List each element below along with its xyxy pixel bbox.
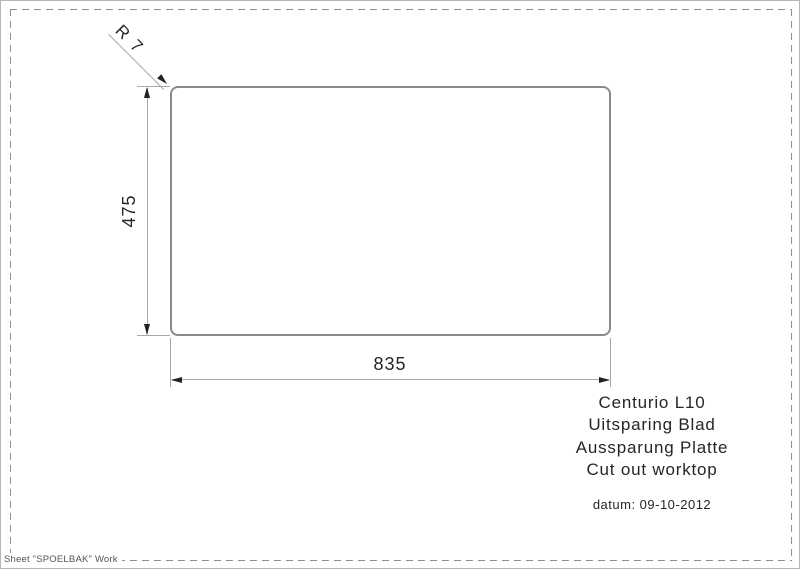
- dimension-arrow-left-icon: [171, 377, 182, 383]
- title-block: Centurio L10 Uitsparing Blad Aussparung …: [552, 392, 752, 482]
- drawing-sheet: R 7 475 835 Centurio L10 Uitsparing Blad…: [0, 0, 800, 569]
- dashed-frame-bottom: [10, 560, 792, 561]
- dashed-frame-top: [10, 9, 792, 10]
- cutout-rectangle: [170, 86, 611, 336]
- date-label: datum: 09-10-2012: [552, 497, 752, 512]
- vertical-dimension-line: [147, 88, 148, 334]
- dashed-frame-left: [10, 9, 11, 561]
- title-block-line-nl: Uitsparing Blad: [552, 414, 752, 436]
- title-block-line-en: Cut out worktop: [552, 459, 752, 481]
- title-block-product-name: Centurio L10: [552, 392, 752, 414]
- sheet-label: Sheet "SPOELBAK" Work: [2, 553, 122, 565]
- extension-line-bottom-left: [137, 335, 170, 336]
- height-dimension-label: 475: [119, 171, 139, 251]
- dimension-arrow-right-icon: [599, 377, 610, 383]
- width-dimension-label: 835: [340, 354, 440, 375]
- corner-radius-label: R 7: [111, 21, 148, 58]
- dashed-frame-right: [791, 9, 792, 561]
- dimension-arrow-down-icon: [144, 324, 150, 335]
- dimension-arrow-up-icon: [144, 87, 150, 98]
- extension-line-below-right: [610, 338, 611, 387]
- title-block-line-de: Aussparung Platte: [552, 437, 752, 459]
- extension-line-top-left: [137, 86, 170, 87]
- horizontal-dimension-line: [172, 379, 609, 380]
